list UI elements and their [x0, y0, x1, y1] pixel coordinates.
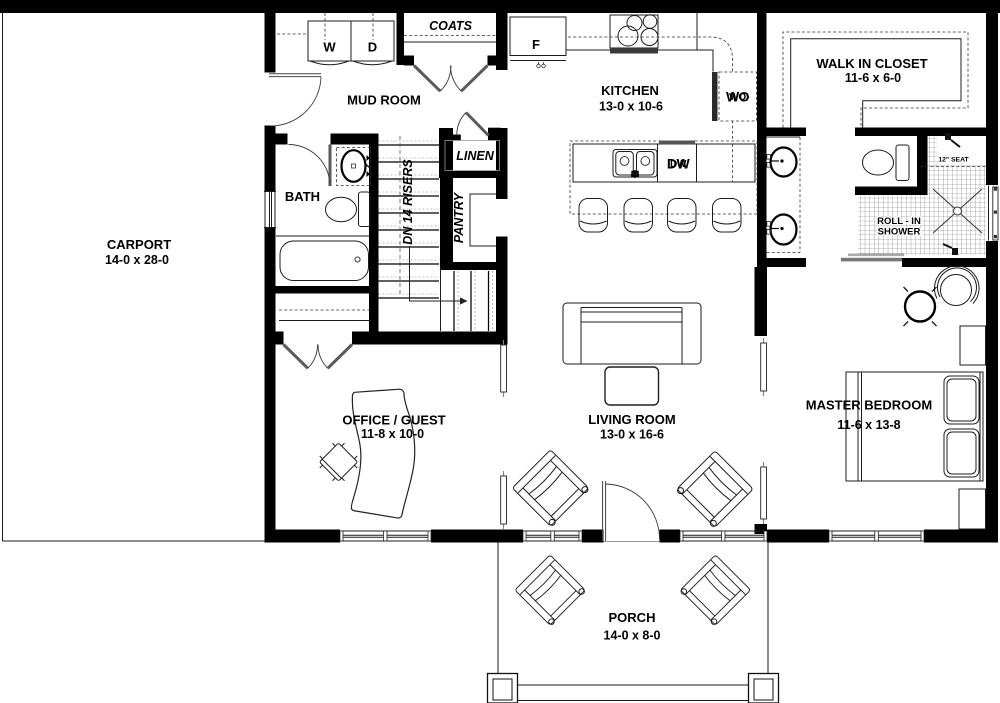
svg-text:DN 14 RISERS: DN 14 RISERS	[401, 159, 415, 245]
svg-text:LINEN: LINEN	[456, 149, 494, 163]
svg-text:CARPORT: CARPORT	[107, 237, 171, 252]
svg-text:SHOWER: SHOWER	[878, 227, 921, 238]
svg-text:KITCHEN: KITCHEN	[601, 83, 659, 98]
svg-text:12" SEAT: 12" SEAT	[938, 157, 969, 164]
svg-text:MUD ROOM: MUD ROOM	[347, 93, 421, 108]
svg-text:13-0 x 10-6: 13-0 x 10-6	[599, 100, 663, 114]
svg-text:DW: DW	[670, 159, 687, 170]
svg-text:WALK IN CLOSET: WALK IN CLOSET	[816, 56, 927, 71]
svg-text:ROLL - IN: ROLL - IN	[877, 216, 921, 227]
svg-text:LIVING ROOM: LIVING ROOM	[588, 412, 675, 427]
svg-text:11-6 x 13-8: 11-6 x 13-8	[837, 418, 900, 432]
svg-text:PORCH: PORCH	[609, 610, 656, 625]
svg-text:W: W	[323, 40, 336, 55]
svg-text:11-8 x 10-0: 11-8 x 10-0	[361, 427, 424, 441]
svg-text:11-6 x 6-0: 11-6 x 6-0	[845, 71, 901, 85]
svg-text:PANTRY: PANTRY	[452, 191, 466, 243]
svg-text:BATH: BATH	[285, 189, 320, 204]
svg-text:D: D	[368, 40, 377, 55]
svg-text:14-0 x 28-0: 14-0 x 28-0	[105, 253, 169, 267]
svg-text:13-0 x 16-6: 13-0 x 16-6	[600, 427, 664, 441]
svg-text:COATS: COATS	[429, 19, 472, 33]
svg-text:MASTER BEDROOM: MASTER BEDROOM	[806, 398, 932, 413]
svg-text:OFFICE / GUEST: OFFICE / GUEST	[342, 413, 445, 428]
svg-text:14-0 x 8-0: 14-0 x 8-0	[604, 629, 661, 643]
svg-text:F: F	[532, 37, 540, 52]
svg-text:WO: WO	[729, 92, 746, 103]
